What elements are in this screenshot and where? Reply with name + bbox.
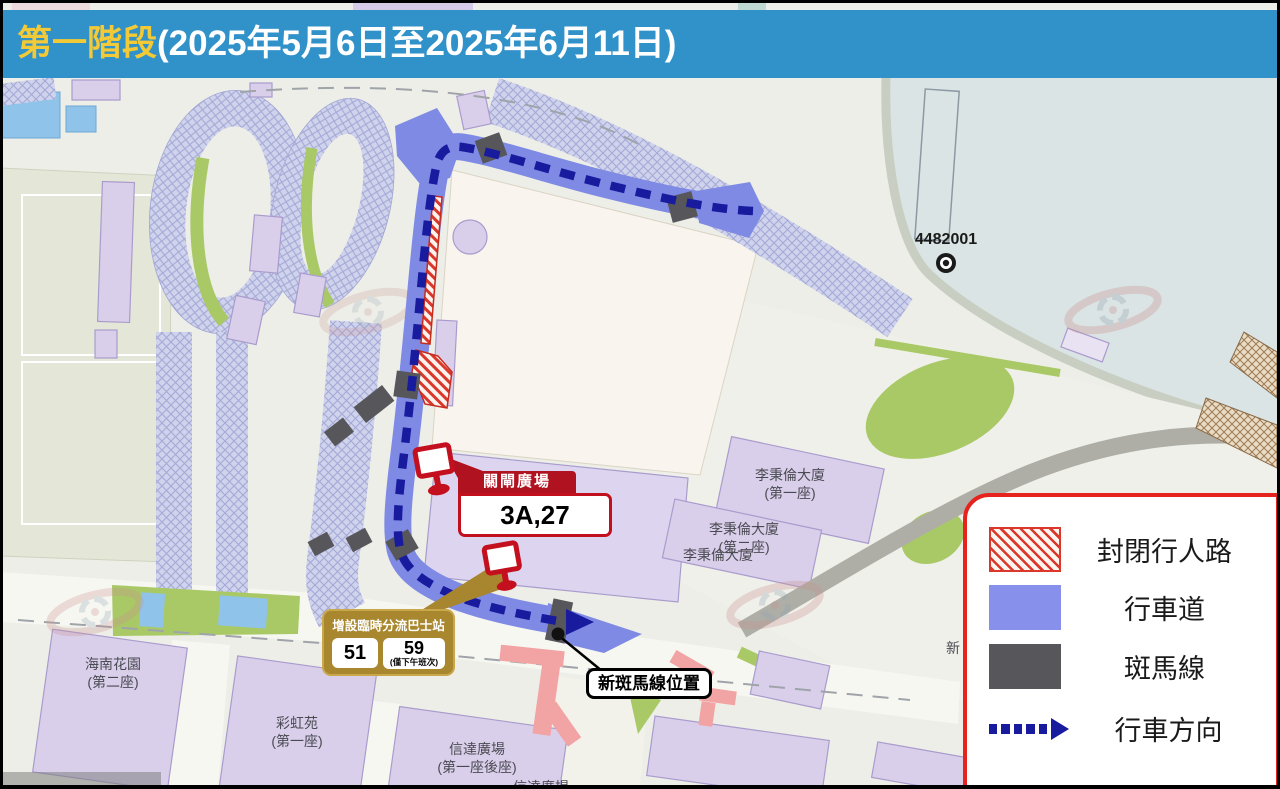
- frame-edge: [0, 0, 1280, 3]
- phase-title: 第一階段: [17, 24, 157, 63]
- building-label: 信達廣場 (第一座後座): [437, 740, 516, 776]
- building-label: 李秉倫大廈 (第一座): [755, 466, 825, 502]
- new-zebra-callout: 新斑馬線位置: [586, 668, 712, 699]
- survey-marker-icon: [936, 253, 956, 273]
- plaza-stop-title: 關閘廣場: [458, 471, 576, 493]
- phase-dates: (2025年5月6日至2025年6月11日): [157, 24, 676, 63]
- temp-stop-callout: 增設臨時分流巴士站 51 59 (僅下午班次): [322, 609, 455, 676]
- temp-stop-route-51: 51: [332, 638, 378, 668]
- direction-arrow-icon: [989, 718, 1069, 740]
- temp-stop-route-59: 59 (僅下午班次): [383, 638, 445, 669]
- zebra-swatch: [989, 644, 1061, 689]
- legend-item-zebra: 斑馬線: [967, 644, 1276, 689]
- legend-item-direction: 行車方向: [967, 706, 1276, 751]
- legend-item-carriageway: 行車道: [967, 585, 1276, 630]
- closed-footpath-swatch: [989, 527, 1061, 572]
- carriageway-swatch: [989, 585, 1061, 630]
- title-bar: 第一階段(2025年5月6日至2025年6月11日): [3, 10, 1277, 78]
- frame-edge: [0, 0, 3, 789]
- copyright-bar: [3, 772, 161, 785]
- legend-item-closed-footpath: 封閉行人路: [967, 527, 1276, 572]
- legend-panel: 封閉行人路 行車道 斑馬線 行車方向: [963, 493, 1280, 789]
- building-label: 彩虹苑 (第一座): [271, 714, 322, 750]
- traffic-map-page: 李秉倫大廈 (第一座) 李秉倫大廈 (第二座) 李秉倫大廈 海南花園 (第二座)…: [0, 0, 1280, 789]
- frame-edge: [0, 785, 1280, 789]
- temp-stop-title: 增設臨時分流巴士站: [327, 615, 450, 634]
- pool-small: [66, 106, 96, 132]
- partial-street-label: 新: [946, 638, 960, 658]
- plaza-stop-routes: 3A,27: [458, 493, 612, 537]
- building-label: 海南花園 (第二座): [85, 655, 141, 691]
- building-label: 李秉倫大廈: [683, 546, 753, 564]
- plaza-stop-callout: 關閘廣場 3A,27: [458, 471, 612, 537]
- sports-field: [0, 168, 172, 562]
- survey-marker-id: 4482001: [915, 231, 977, 249]
